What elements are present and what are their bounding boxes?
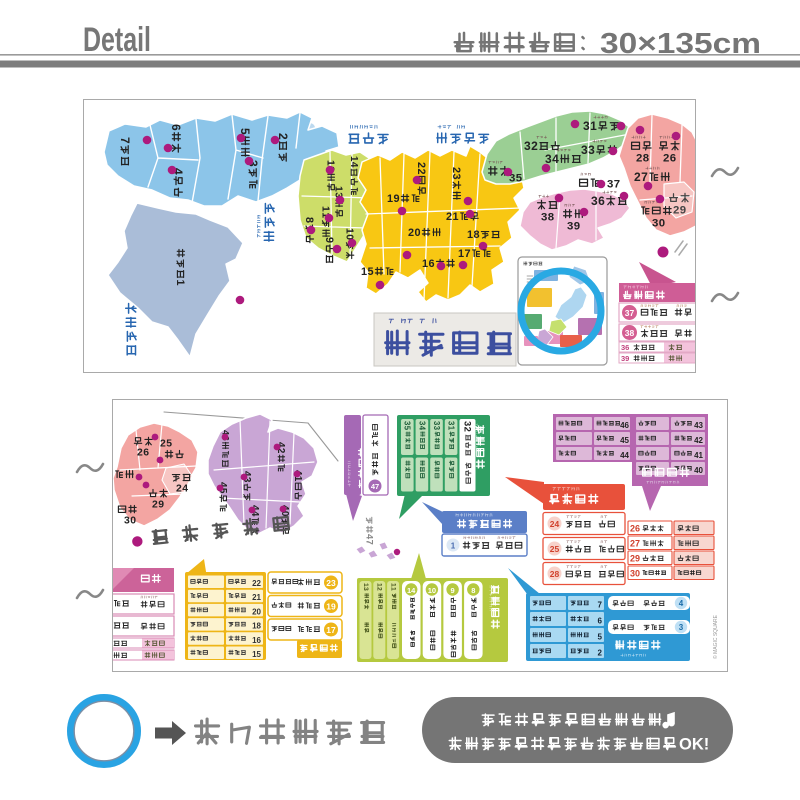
- svg-text:2: 2: [673, 205, 679, 217]
- svg-text:2: 2: [376, 587, 383, 591]
- svg-text:3: 3: [679, 623, 684, 632]
- svg-text:8: 8: [303, 217, 315, 223]
- svg-text:3: 3: [581, 143, 588, 157]
- svg-text:2: 2: [531, 139, 538, 153]
- svg-text:2: 2: [636, 153, 642, 165]
- svg-text:2: 2: [408, 227, 414, 239]
- svg-text:7: 7: [641, 170, 648, 184]
- svg-text:9: 9: [158, 500, 164, 511]
- svg-text:2: 2: [415, 162, 427, 168]
- svg-text:2: 2: [176, 484, 182, 495]
- svg-text:3: 3: [524, 139, 531, 153]
- svg-text:28: 28: [550, 569, 560, 579]
- svg-text:46: 46: [620, 421, 629, 430]
- svg-text:3: 3: [567, 221, 573, 233]
- svg-text:8: 8: [548, 212, 554, 224]
- svg-text:OK!: OK!: [679, 736, 709, 754]
- svg-text:1: 1: [590, 119, 597, 133]
- svg-text:18: 18: [252, 622, 261, 631]
- svg-text:45: 45: [620, 436, 629, 445]
- svg-text:23: 23: [326, 578, 336, 588]
- svg-text:3: 3: [591, 194, 598, 208]
- svg-text:37: 37: [625, 308, 635, 318]
- svg-text:15: 15: [252, 650, 261, 659]
- svg-text:47: 47: [371, 482, 379, 491]
- svg-text:5: 5: [598, 633, 603, 642]
- svg-text:3: 3: [450, 174, 462, 180]
- svg-text:Detail: Detail: [83, 21, 151, 59]
- svg-text:7: 7: [364, 540, 375, 545]
- svg-text:30: 30: [630, 569, 640, 579]
- svg-text:1: 1: [332, 186, 343, 192]
- svg-text:1: 1: [319, 206, 330, 212]
- svg-text:2: 2: [160, 439, 166, 450]
- svg-text:36: 36: [621, 343, 629, 352]
- svg-text:21: 21: [252, 593, 261, 602]
- svg-text:2: 2: [450, 167, 462, 173]
- svg-text:0: 0: [415, 227, 421, 239]
- svg-text:7: 7: [598, 601, 603, 610]
- svg-text:1: 1: [343, 228, 354, 234]
- svg-text:19: 19: [326, 602, 336, 612]
- svg-text:2: 2: [446, 211, 452, 223]
- svg-text:8: 8: [471, 586, 475, 595]
- svg-text:3: 3: [432, 426, 441, 431]
- svg-text:27: 27: [630, 539, 640, 549]
- svg-text:42: 42: [694, 436, 703, 445]
- svg-text:6: 6: [143, 448, 149, 459]
- svg-text:22: 22: [252, 579, 261, 588]
- svg-text:7: 7: [465, 248, 471, 260]
- svg-text:8: 8: [474, 229, 480, 241]
- svg-text:16: 16: [252, 636, 261, 645]
- svg-text:6: 6: [598, 617, 603, 626]
- svg-text:0: 0: [130, 516, 136, 527]
- svg-text:9: 9: [394, 193, 400, 205]
- svg-text:10: 10: [428, 586, 436, 595]
- svg-text:4: 4: [552, 152, 559, 166]
- svg-text:2: 2: [634, 170, 641, 184]
- svg-text:14: 14: [407, 586, 416, 595]
- svg-text:1: 1: [324, 160, 335, 166]
- svg-text:6: 6: [429, 258, 435, 270]
- svg-text:2: 2: [137, 448, 143, 459]
- svg-text:44: 44: [620, 451, 629, 460]
- svg-text:2: 2: [152, 500, 158, 511]
- svg-text:38: 38: [625, 328, 635, 338]
- svg-text:3: 3: [652, 218, 658, 230]
- svg-text:1: 1: [361, 266, 367, 278]
- svg-text:2: 2: [598, 649, 603, 658]
- svg-text:3: 3: [607, 179, 613, 191]
- svg-text:4: 4: [417, 426, 426, 431]
- svg-text:2: 2: [663, 153, 669, 165]
- svg-text:5: 5: [516, 173, 523, 185]
- svg-text:3: 3: [462, 421, 473, 426]
- svg-text:6: 6: [169, 124, 183, 131]
- svg-text:1: 1: [447, 426, 456, 431]
- svg-text:24: 24: [550, 519, 560, 529]
- svg-text:5: 5: [368, 266, 374, 278]
- svg-text:4: 4: [182, 484, 188, 495]
- svg-text:1: 1: [422, 258, 428, 270]
- svg-text:4: 4: [679, 599, 684, 608]
- svg-text:6: 6: [670, 153, 676, 165]
- svg-text:1: 1: [451, 542, 456, 551]
- svg-text:3: 3: [583, 119, 590, 133]
- svg-text:5: 5: [166, 439, 172, 450]
- svg-text:43: 43: [694, 421, 703, 430]
- svg-text:9: 9: [451, 586, 455, 595]
- svg-text:1: 1: [390, 587, 397, 591]
- svg-text:© MAGIC SQUARE: © MAGIC SQUARE: [712, 614, 719, 659]
- svg-text:25: 25: [550, 544, 560, 554]
- svg-text:7: 7: [614, 179, 620, 191]
- svg-text:3: 3: [362, 587, 369, 591]
- svg-text:3: 3: [541, 212, 547, 224]
- svg-text:40: 40: [694, 466, 703, 475]
- svg-text:1: 1: [467, 229, 473, 241]
- svg-text:1: 1: [453, 211, 459, 223]
- svg-text:41: 41: [694, 451, 703, 460]
- svg-text:3: 3: [588, 143, 595, 157]
- svg-text:3: 3: [124, 516, 130, 527]
- svg-text:4: 4: [348, 162, 359, 168]
- svg-text:1: 1: [458, 248, 464, 260]
- svg-text:1: 1: [174, 280, 186, 286]
- svg-text:5: 5: [403, 426, 412, 431]
- svg-text:0: 0: [659, 218, 665, 230]
- svg-text:17: 17: [326, 625, 336, 635]
- svg-text:9: 9: [680, 205, 686, 217]
- svg-text:39: 39: [621, 354, 629, 363]
- svg-text:9: 9: [323, 237, 335, 243]
- svg-text:9: 9: [574, 221, 580, 233]
- svg-text:20: 20: [252, 607, 261, 616]
- svg-text:7: 7: [118, 137, 132, 144]
- svg-text:29: 29: [630, 554, 640, 564]
- svg-text:2: 2: [462, 427, 473, 432]
- svg-text:26: 26: [630, 524, 640, 534]
- svg-text:8: 8: [643, 153, 649, 165]
- svg-text:1: 1: [387, 193, 393, 205]
- svg-text:2: 2: [415, 169, 427, 175]
- svg-text:6: 6: [598, 194, 605, 208]
